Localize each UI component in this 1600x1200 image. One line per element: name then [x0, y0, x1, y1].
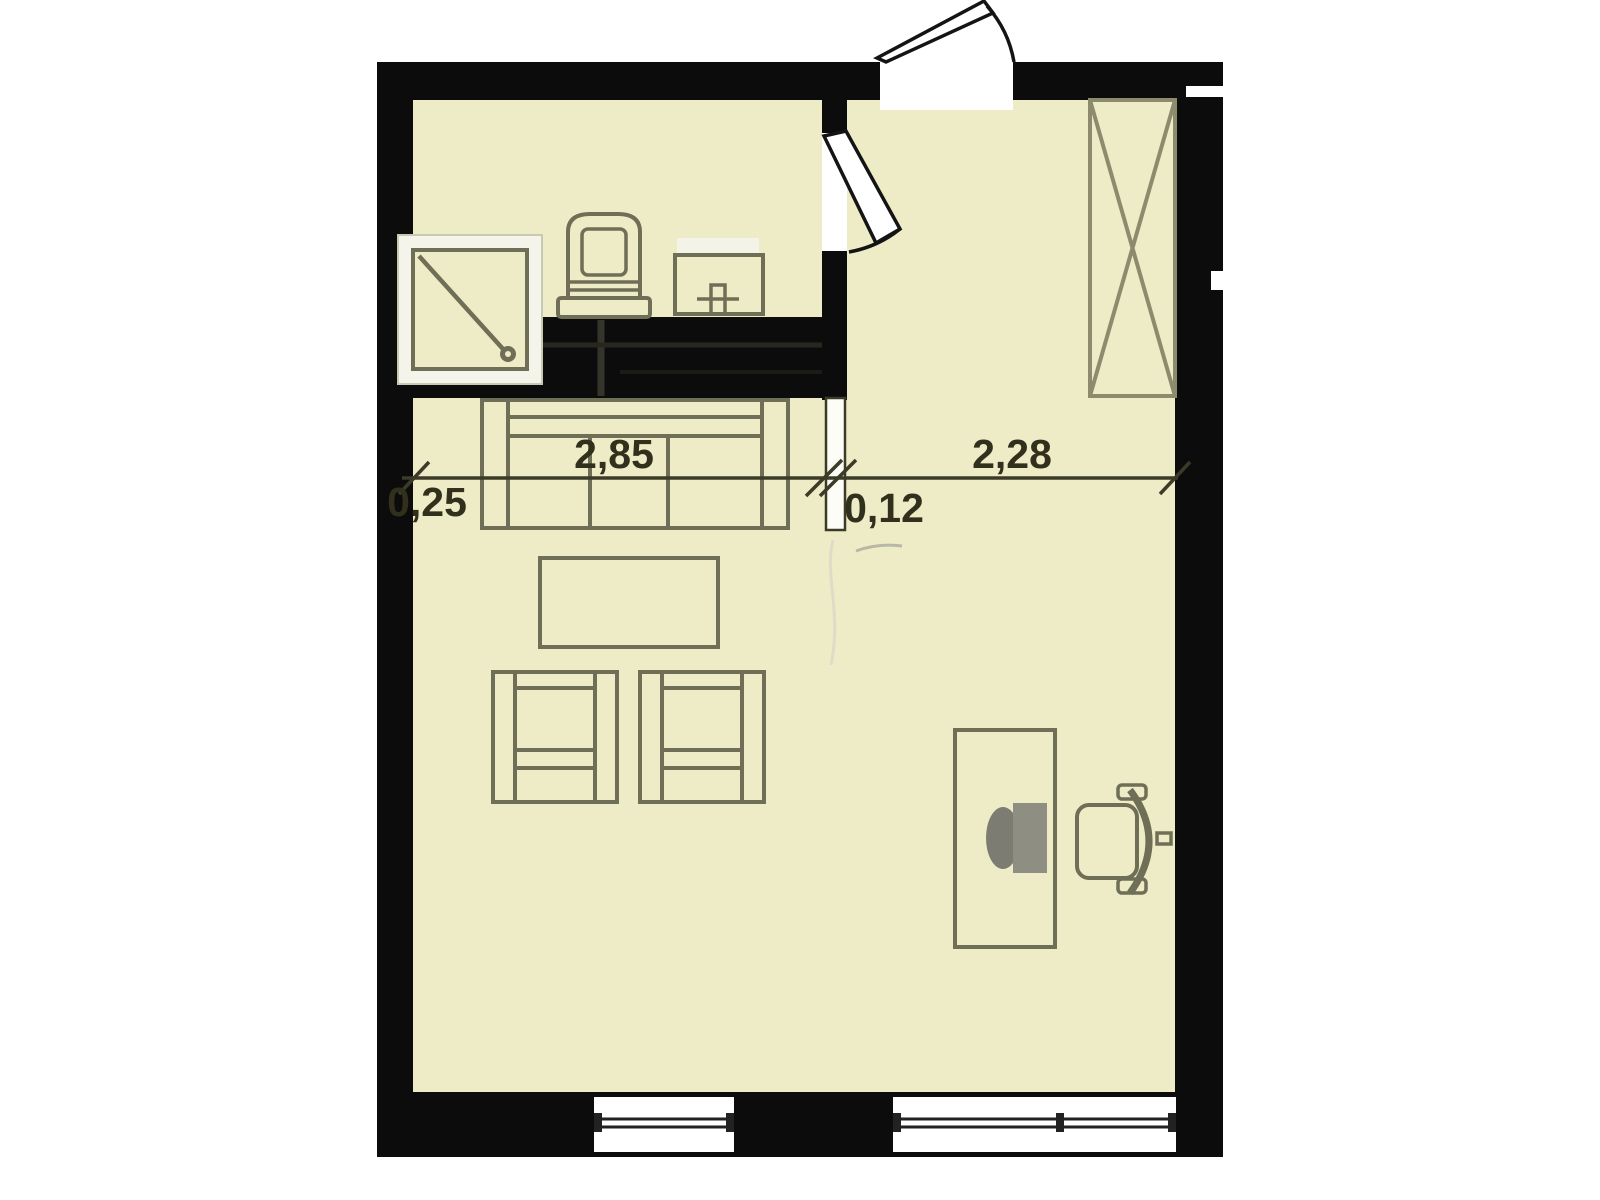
- floor-plan-drawing: 0,25 2,85 0,12 2,28: [0, 0, 1600, 1200]
- right-wall: [1175, 62, 1223, 1157]
- wall-joint-notch: [1211, 271, 1223, 290]
- partition-stub: [826, 398, 845, 530]
- dimension-label: 2,28: [972, 431, 1052, 477]
- floor-plan-canvas: 0,25 2,85 0,12 2,28: [0, 0, 1600, 1200]
- dimension-label: 2,85: [574, 431, 654, 477]
- left-wall: [377, 62, 413, 1157]
- dimension-label: 0,12: [844, 485, 924, 531]
- window-icon: [594, 1097, 734, 1152]
- window-icon: [893, 1097, 1176, 1152]
- entrance-door-icon: [877, 1, 1014, 110]
- dimension-label: 0,25: [387, 479, 467, 525]
- shower-icon: [398, 235, 542, 384]
- top-wall-left: [377, 62, 880, 100]
- monitor-icon: [986, 803, 1047, 873]
- bathroom-wall-lower: [822, 251, 847, 400]
- bathroom-wall-upper: [822, 100, 847, 135]
- wall-joint-notch: [1186, 86, 1223, 97]
